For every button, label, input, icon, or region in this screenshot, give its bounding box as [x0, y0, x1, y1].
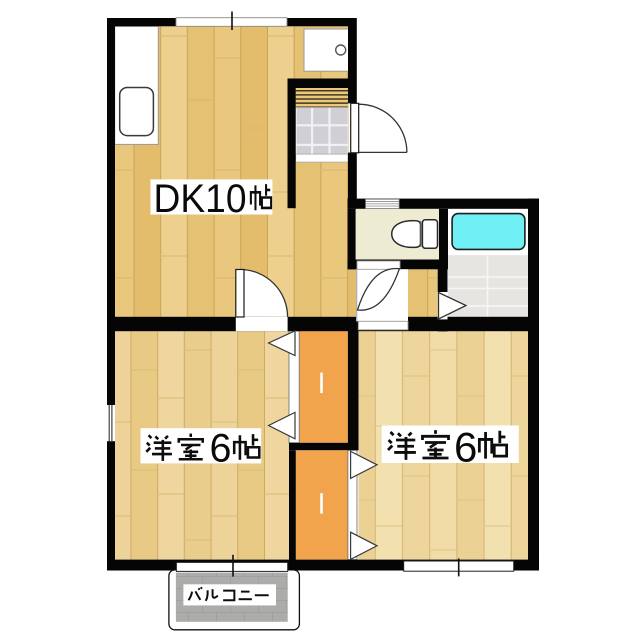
svg-text:6: 6: [454, 424, 477, 471]
svg-text:6: 6: [210, 427, 232, 471]
svg-text:DK10: DK10: [154, 177, 247, 221]
